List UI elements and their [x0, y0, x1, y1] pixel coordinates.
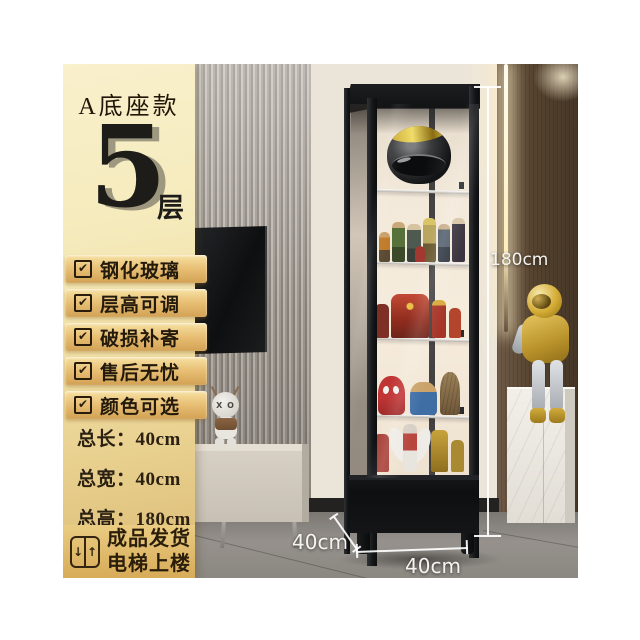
action-figure — [431, 430, 448, 472]
info-panel: A底座款 5 层 ✔ 钢化玻璃 ✔ 层高可调 ✔ 破损补寄 ✔ 售后无忧 — [63, 64, 195, 578]
feature-label: 钢化玻璃 — [100, 256, 180, 283]
height-dimension-tick — [474, 86, 501, 88]
showroom-photo: X O — [63, 64, 578, 578]
shipping-line-2: 电梯上楼 — [107, 552, 191, 576]
feature-item: ✔ 层高可调 — [65, 289, 207, 317]
deadpool-figure — [378, 376, 405, 415]
action-figure — [379, 232, 390, 262]
width-dimension-label: 40cm — [403, 554, 463, 578]
elevator-up-arrow: ↑ — [84, 538, 98, 566]
depth-dimension-label: 40cm — [292, 530, 348, 554]
feature-item: ✔ 破损补寄 — [65, 323, 207, 351]
action-figure — [452, 218, 465, 262]
elevator-icon: ↓ ↑ — [70, 536, 100, 568]
height-dimension-label: 180cm — [490, 250, 548, 270]
check-glyph: ✔ — [78, 330, 88, 342]
feature-item: ✔ 售后无忧 — [65, 357, 207, 385]
action-figure — [375, 304, 389, 338]
feature-label: 售后无忧 — [100, 358, 180, 385]
dimension-value: 40cm — [136, 469, 181, 490]
height-dimension-line — [487, 87, 489, 537]
helmet-figure — [387, 126, 451, 184]
angel-body — [403, 424, 417, 472]
check-glyph: ✔ — [78, 364, 88, 376]
elevator-down-arrow: ↓ — [72, 538, 84, 566]
shipping-line-1: 成品发货 — [107, 527, 191, 551]
tier-count: 5 — [89, 112, 167, 224]
hulkbuster-figure — [391, 294, 429, 338]
checkbox-icon: ✔ — [74, 328, 92, 346]
angel-figure — [391, 422, 429, 472]
feature-item: ✔ 颜色可选 — [65, 391, 207, 419]
action-figure — [449, 308, 461, 338]
checkbox-icon: ✔ — [74, 362, 92, 380]
feature-label: 层高可调 — [100, 290, 180, 317]
dimension-list: 总长：40cm 总宽：40cm 总高：180cm — [77, 424, 191, 531]
helmet-visor — [392, 154, 446, 176]
checkbox-icon: ✔ — [74, 396, 92, 414]
check-glyph: ✔ — [78, 398, 88, 410]
action-figure — [392, 222, 405, 262]
shipping-text: 成品发货 电梯上楼 — [107, 527, 191, 576]
tier-unit: 层 — [157, 186, 184, 225]
shelf-clip — [459, 182, 464, 189]
feature-label: 颜色可选 — [100, 392, 180, 419]
feature-label: 破损补寄 — [100, 324, 180, 351]
cabinet-base-box — [349, 475, 479, 533]
check-glyph: ✔ — [78, 296, 88, 308]
check-glyph: ✔ — [78, 262, 88, 274]
action-figure — [415, 246, 425, 262]
deadpool-eye — [382, 386, 389, 395]
helmet-gold-crown — [388, 126, 448, 145]
height-dimension-tick — [474, 535, 501, 537]
checkbox-icon: ✔ — [74, 294, 92, 312]
feature-list: ✔ 钢化玻璃 ✔ 层高可调 ✔ 破损补寄 ✔ 售后无忧 ✔ 颜色可选 — [65, 255, 207, 419]
deadpool-eye — [392, 386, 399, 395]
action-figure — [432, 300, 446, 338]
action-figure — [410, 382, 437, 415]
groot-figure — [440, 372, 460, 415]
action-figure — [438, 224, 450, 262]
action-figure — [451, 440, 464, 472]
dimension-name: 总宽： — [77, 469, 136, 490]
dimension-row: 总宽：40cm — [77, 464, 191, 491]
feature-item: ✔ 钢化玻璃 — [65, 255, 207, 283]
cabinet-base-rim — [349, 475, 479, 480]
checkbox-icon: ✔ — [74, 260, 92, 278]
product-listing-image: X O — [0, 0, 640, 640]
dimension-name: 总长： — [77, 429, 136, 450]
width-dimension-bar — [356, 547, 468, 553]
shipping-banner: ↓ ↑ 成品发货 电梯上楼 — [63, 525, 195, 578]
dimension-row: 总长：40cm — [77, 424, 191, 451]
dimension-value: 40cm — [136, 429, 181, 450]
